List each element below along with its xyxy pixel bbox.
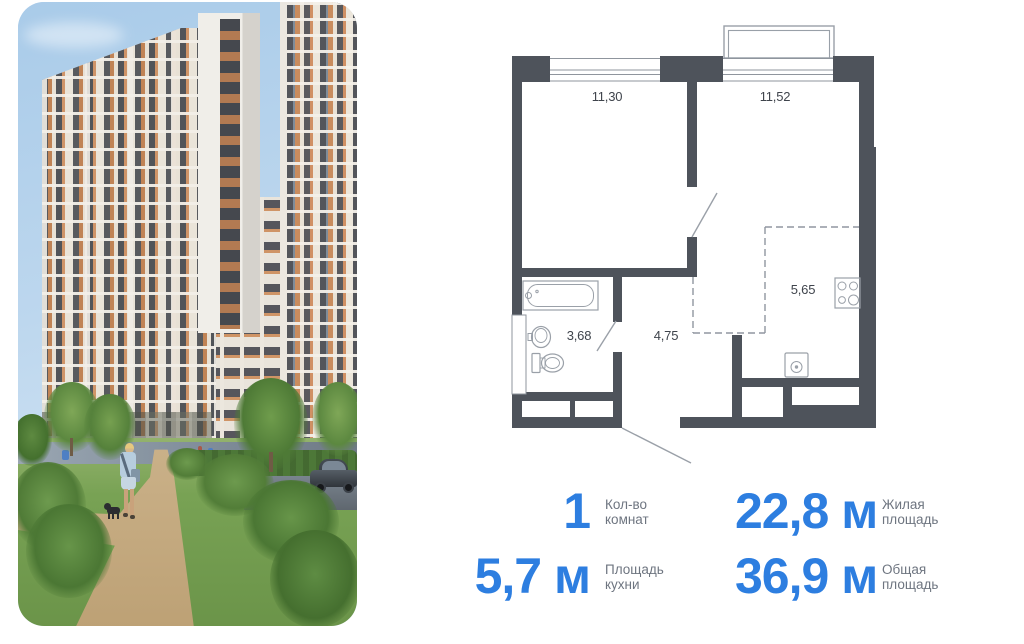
- stat-label-line: площадь: [882, 577, 938, 592]
- window: [723, 59, 833, 82]
- stat-label-line: площадь: [882, 512, 938, 527]
- floor-plan: 11,30 11,52 3,68 4,75 5,65: [500, 18, 890, 468]
- kitchen-niche-dashed-line: [693, 227, 859, 333]
- bathtub-icon: [523, 281, 598, 310]
- room-door-line: [692, 193, 717, 237]
- stat-living-area-value: 22,8 м: [735, 489, 875, 533]
- car-wheel: [343, 482, 354, 493]
- stat-total-area-label: Общая площадь: [882, 554, 938, 598]
- room-area-label: 11,52: [760, 89, 791, 104]
- pedestrian-leg: [124, 489, 128, 513]
- building-photo: [18, 2, 357, 626]
- stat-label-line: комнат: [605, 512, 649, 527]
- dog-leg: [112, 513, 114, 519]
- shaft-niche: [512, 315, 526, 394]
- stat-label-line: кухни: [605, 577, 664, 592]
- stat-kitchen-area: 5,7 м Площадь кухни: [430, 554, 664, 598]
- balcony: [724, 26, 834, 58]
- stat-kitchen-area-label: Площадь кухни: [605, 554, 664, 598]
- stat-rooms-label: Кол-во комнат: [605, 489, 649, 533]
- room-area-label: 5,65: [791, 282, 816, 297]
- window: [550, 59, 660, 82]
- bush: [166, 448, 208, 480]
- stat-total-area-value: 36,9 м: [735, 554, 875, 598]
- sink-icon: [528, 327, 551, 348]
- entry-door-line: [622, 428, 691, 463]
- tower-white-corner: [198, 13, 260, 333]
- tree-trunk: [70, 438, 73, 456]
- car-window: [322, 461, 346, 470]
- walls: [512, 56, 876, 428]
- room-area-label: 4,75: [654, 328, 679, 343]
- stat-total-area: 36,9 м Общая площадь: [735, 554, 938, 598]
- stat-label-line: Кол-во: [605, 497, 649, 512]
- tree-trunk: [269, 452, 273, 472]
- pedestrian-shoe: [130, 515, 135, 519]
- stat-living-area: 22,8 м Жилая площадь: [735, 489, 938, 533]
- room-area-label: 11,30: [592, 89, 623, 104]
- pedestrian: [118, 443, 140, 527]
- pedestrian-leg: [130, 489, 134, 515]
- toilet-icon: [532, 354, 564, 373]
- stat-rooms: 1 Кол-во комнат: [430, 489, 649, 533]
- stat-label-line: Общая: [882, 562, 938, 577]
- dog-leg: [108, 513, 110, 519]
- stat-living-area-label: Жилая площадь: [882, 489, 938, 533]
- stat-rooms-value: 1: [430, 489, 590, 533]
- bathroom-door-line: [597, 321, 616, 351]
- stat-label-line: Площадь: [605, 562, 664, 577]
- washer-icon: [785, 353, 808, 377]
- bush: [270, 530, 357, 626]
- stove-icon: [835, 278, 860, 308]
- bush: [26, 504, 112, 598]
- cloud: [24, 22, 124, 48]
- pedestrian-shoe: [123, 513, 128, 517]
- tree: [312, 382, 357, 456]
- tower-window-strip: [220, 19, 240, 329]
- stat-kitchen-area-value: 5,7 м: [430, 554, 590, 598]
- stat-label-line: Жилая: [882, 497, 938, 512]
- room-area-label: 3,68: [567, 328, 592, 343]
- listing-card: 11,30 11,52 3,68 4,75 5,65 1 Кол-во комн…: [0, 0, 1024, 644]
